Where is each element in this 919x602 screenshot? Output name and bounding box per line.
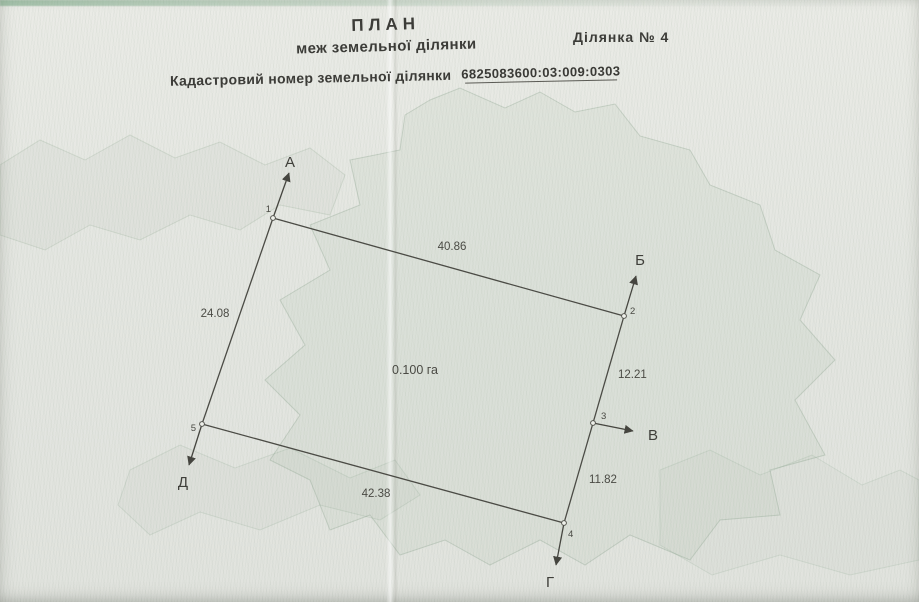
adjacent-label-D: Д [178,474,188,491]
arrow-to-A [273,173,289,218]
side-length-1-2: 40.86 [438,241,467,253]
vertex-number-3: 3 [601,411,606,422]
point-5-marker [200,422,205,427]
vertex-number-5: 5 [191,423,196,434]
adjacent-label-A: А [285,154,295,171]
side-length-5-4: 42.38 [362,488,391,500]
vertex-number-1: 1 [266,204,271,215]
arrow-to-G [556,523,564,565]
adjacent-label-B: Б [635,252,645,269]
point-2-marker [622,314,627,319]
boundary-side-5-1 [202,218,273,424]
vertex-number-2: 2 [630,306,635,317]
arrow-to-V [593,423,633,431]
vertex-number-4: 4 [568,529,573,540]
point-3-marker [591,421,596,426]
side-length-2-3: 12.21 [618,369,647,381]
boundary-side-3-4 [564,423,593,523]
scanned-land-plan-document: ПЛАН меж земельної ділянки Ділянка № 4 К… [0,0,919,602]
boundary-side-1-2 [273,218,624,316]
side-length-3-4: 11.82 [589,474,617,486]
parcel-plan-drawing: 1 2 3 4 5 А Б В Г Д 40.86 24.08 12.21 11… [0,0,919,602]
adjacent-label-G: Г [546,574,554,591]
side-length-1-5: 24.08 [201,308,230,320]
point-1-marker [271,216,276,221]
boundary-side-4-5 [202,424,564,523]
point-4-marker [562,521,567,526]
parcel-area-label: 0.100 га [392,363,438,377]
adjacent-label-V: В [648,427,658,444]
